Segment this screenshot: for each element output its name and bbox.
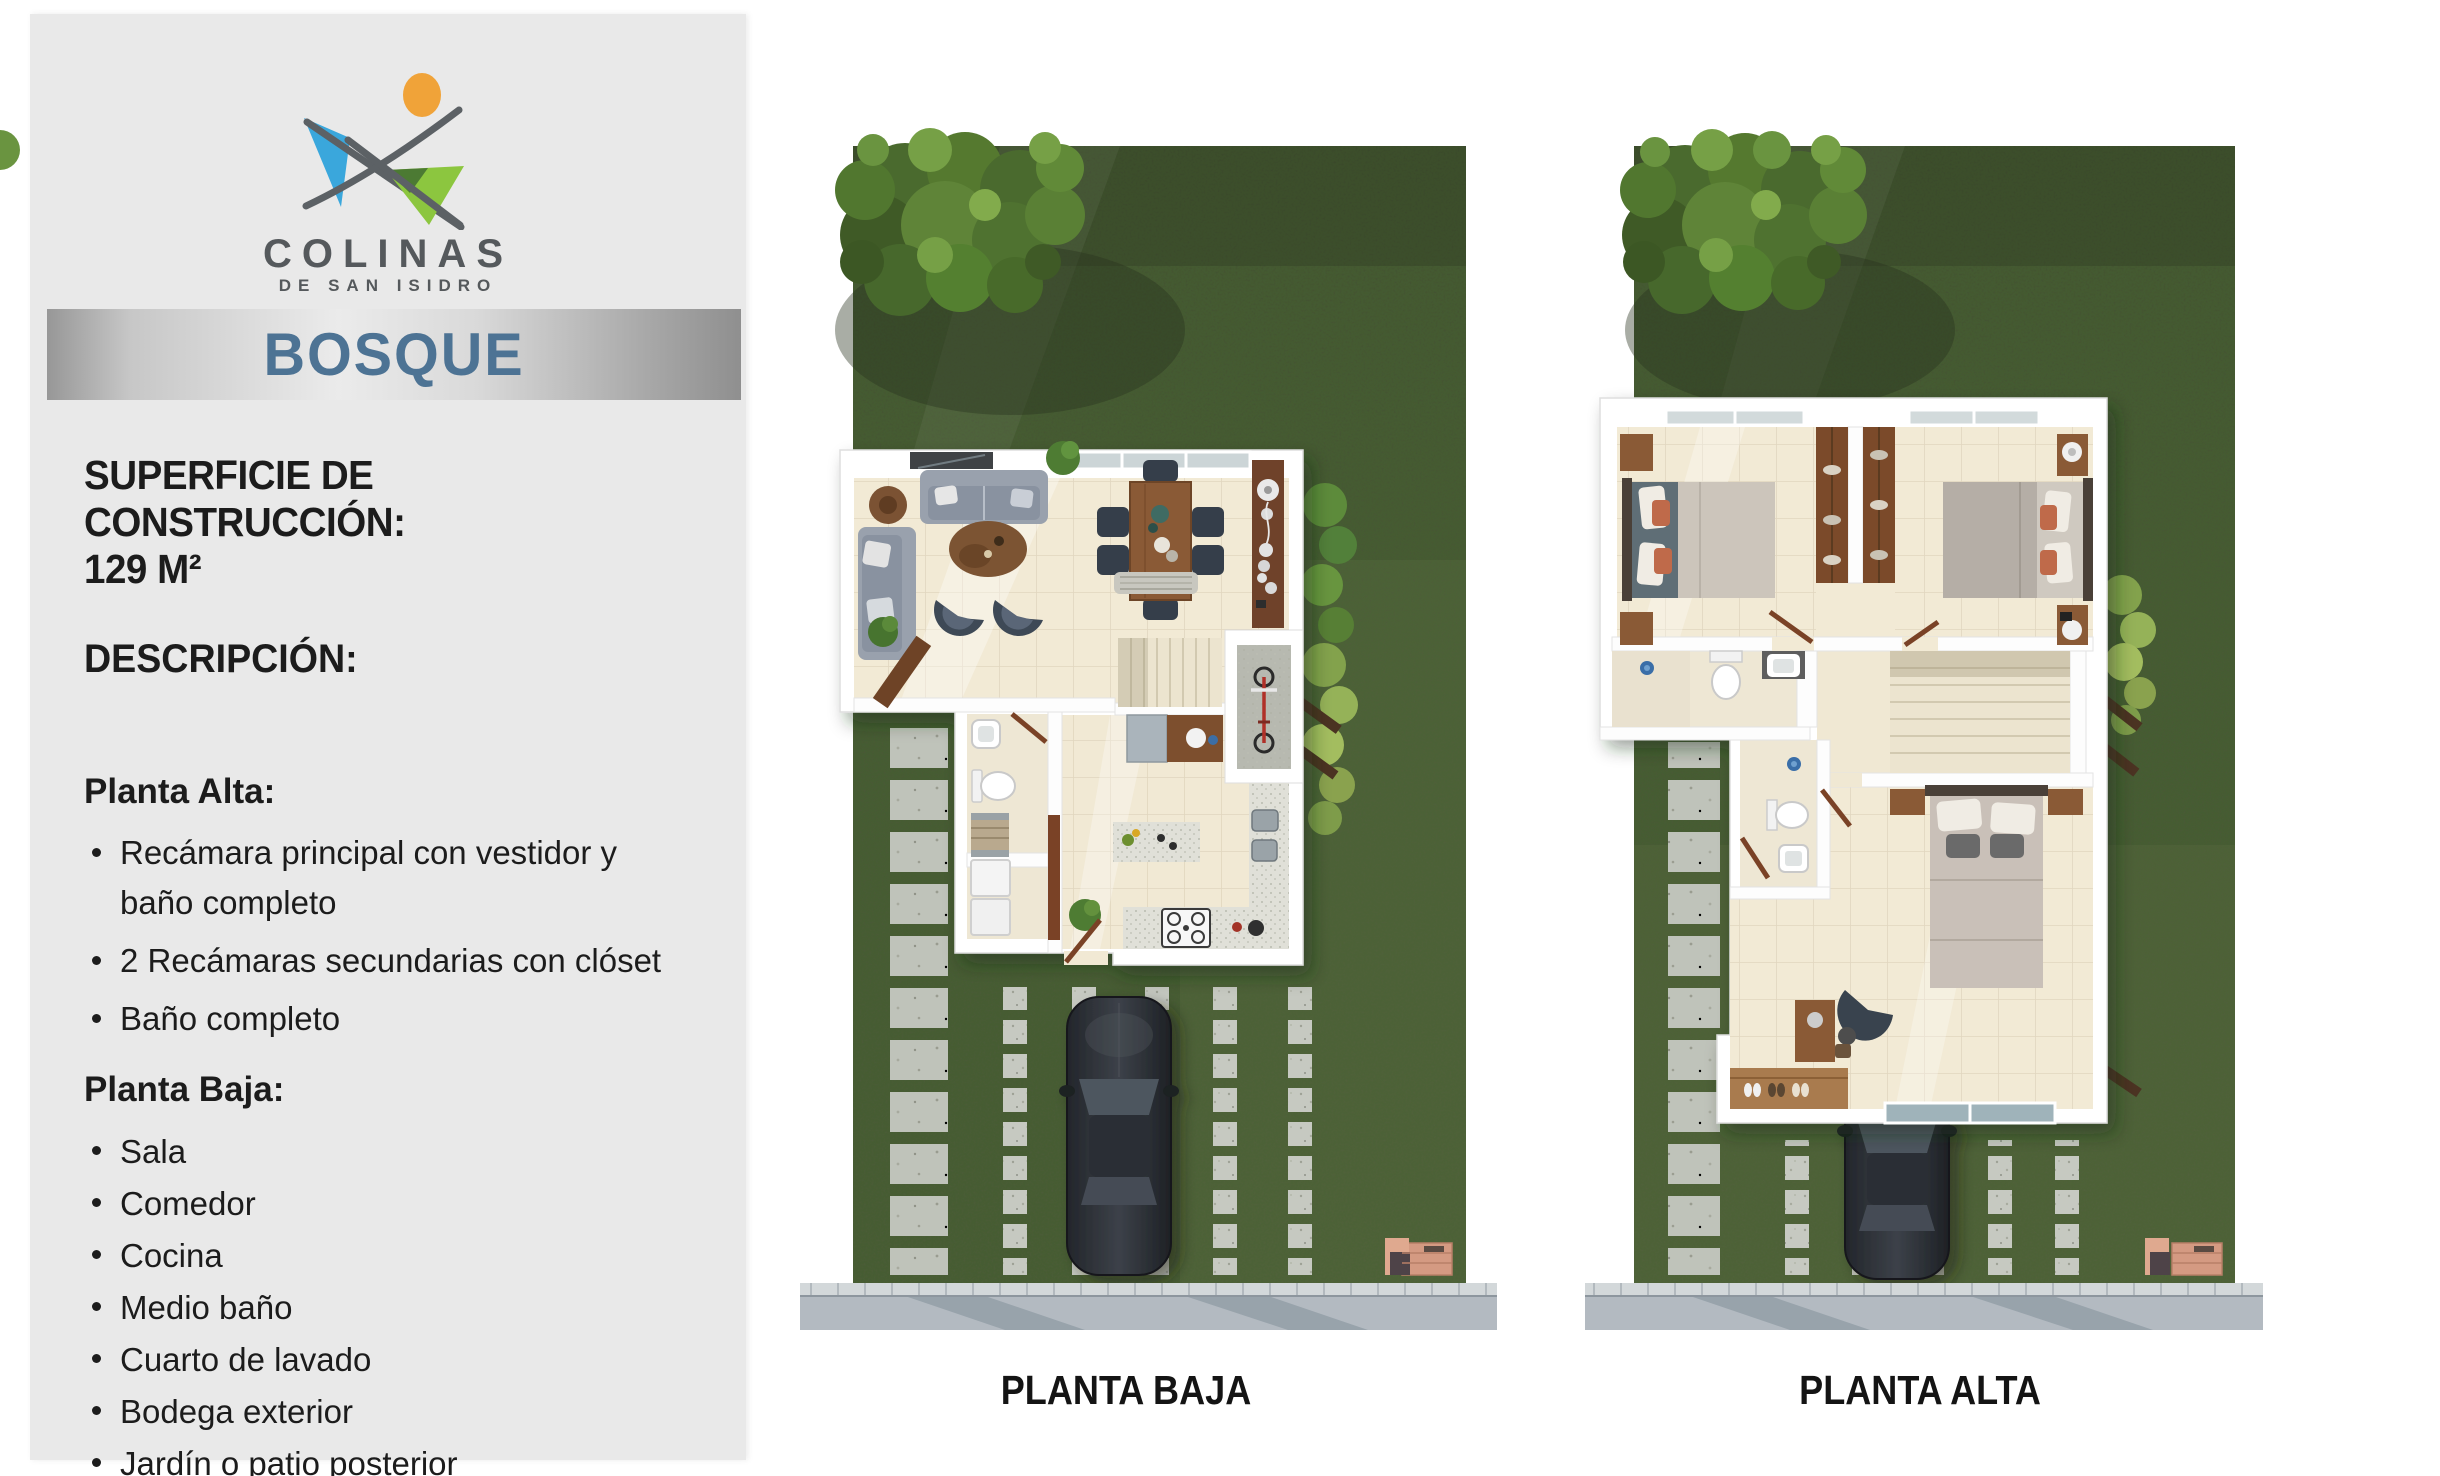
pa-street bbox=[1585, 1283, 2263, 1330]
pb-tv-console bbox=[1252, 460, 1284, 628]
bullet-dot bbox=[92, 848, 101, 857]
bullet-dot bbox=[92, 1458, 101, 1467]
pb-car bbox=[1059, 997, 1179, 1275]
sidebar-content: SUPERFICIE DE CONSTRUCCIÓN: 129 M² DESCR… bbox=[84, 452, 710, 1476]
plan-planta-alta: PLANTA ALTA bbox=[1585, 129, 2263, 1414]
pb-bodega bbox=[1225, 630, 1303, 783]
bullet-dot bbox=[92, 1014, 101, 1023]
list-item: Recámara principal con vestidor y baño c… bbox=[84, 828, 664, 928]
bullet-dot bbox=[92, 1250, 101, 1259]
list-item: Medio baño bbox=[84, 1282, 664, 1334]
pa-stairs bbox=[1890, 651, 2070, 773]
brochure-page: PLANTA BAJA bbox=[0, 0, 2440, 1476]
planta-alta-heading: Planta Alta: bbox=[84, 772, 710, 812]
info-sidebar: COLINAS DE SAN ISIDRO BOSQUE SUPERFICIE … bbox=[30, 14, 746, 1460]
list-item: Sala bbox=[84, 1126, 664, 1178]
pb-street bbox=[800, 1283, 1497, 1330]
list-item: Cuarto de lavado bbox=[84, 1334, 664, 1386]
bullet-dot bbox=[92, 1406, 101, 1415]
model-banner: BOSQUE bbox=[47, 309, 741, 400]
list-item: Comedor bbox=[84, 1178, 664, 1230]
list-item: Cocina bbox=[84, 1230, 664, 1282]
brand-name: COLINAS bbox=[30, 232, 746, 277]
planta-baja-list: Sala Comedor Cocina Medio baño Cuarto de… bbox=[84, 1126, 664, 1476]
plan-alta-label: PLANTA ALTA bbox=[1799, 1368, 2041, 1414]
brand-subtitle: DE SAN ISIDRO bbox=[30, 276, 746, 296]
bullet-dot bbox=[92, 1146, 101, 1155]
planta-alta-list: Recámara principal con vestidor y baño c… bbox=[84, 828, 664, 1044]
planta-baja-heading: Planta Baja: bbox=[84, 1070, 710, 1110]
pb-stairs bbox=[1118, 638, 1222, 707]
surface-value: 129 M² bbox=[84, 546, 201, 592]
pa-closets bbox=[1816, 427, 1895, 583]
plan-baja-label: PLANTA BAJA bbox=[1001, 1368, 1252, 1414]
bullet-dot bbox=[92, 956, 101, 965]
bullet-dot bbox=[92, 1198, 101, 1207]
colinas-logo-icon bbox=[288, 58, 488, 230]
list-item: 2 Recámaras secundarias con clóset bbox=[84, 936, 664, 986]
list-item: Bodega exterior bbox=[84, 1386, 664, 1438]
pb-walkway bbox=[890, 717, 948, 1275]
pa-trash-enclosure bbox=[2145, 1238, 2222, 1275]
list-item: Jardín o patio posterior bbox=[84, 1438, 664, 1476]
bullet-dot bbox=[92, 1354, 101, 1363]
model-title: BOSQUE bbox=[263, 320, 524, 389]
pa-walkway bbox=[1668, 742, 1720, 1275]
pb-trash-enclosure bbox=[1385, 1238, 1452, 1275]
list-item: Baño completo bbox=[84, 994, 664, 1044]
bullet-dot bbox=[92, 1302, 101, 1311]
description-heading: DESCRIPCIÓN: bbox=[84, 637, 672, 682]
surface-heading: SUPERFICIE DE CONSTRUCCIÓN: 129 M² bbox=[84, 452, 672, 593]
